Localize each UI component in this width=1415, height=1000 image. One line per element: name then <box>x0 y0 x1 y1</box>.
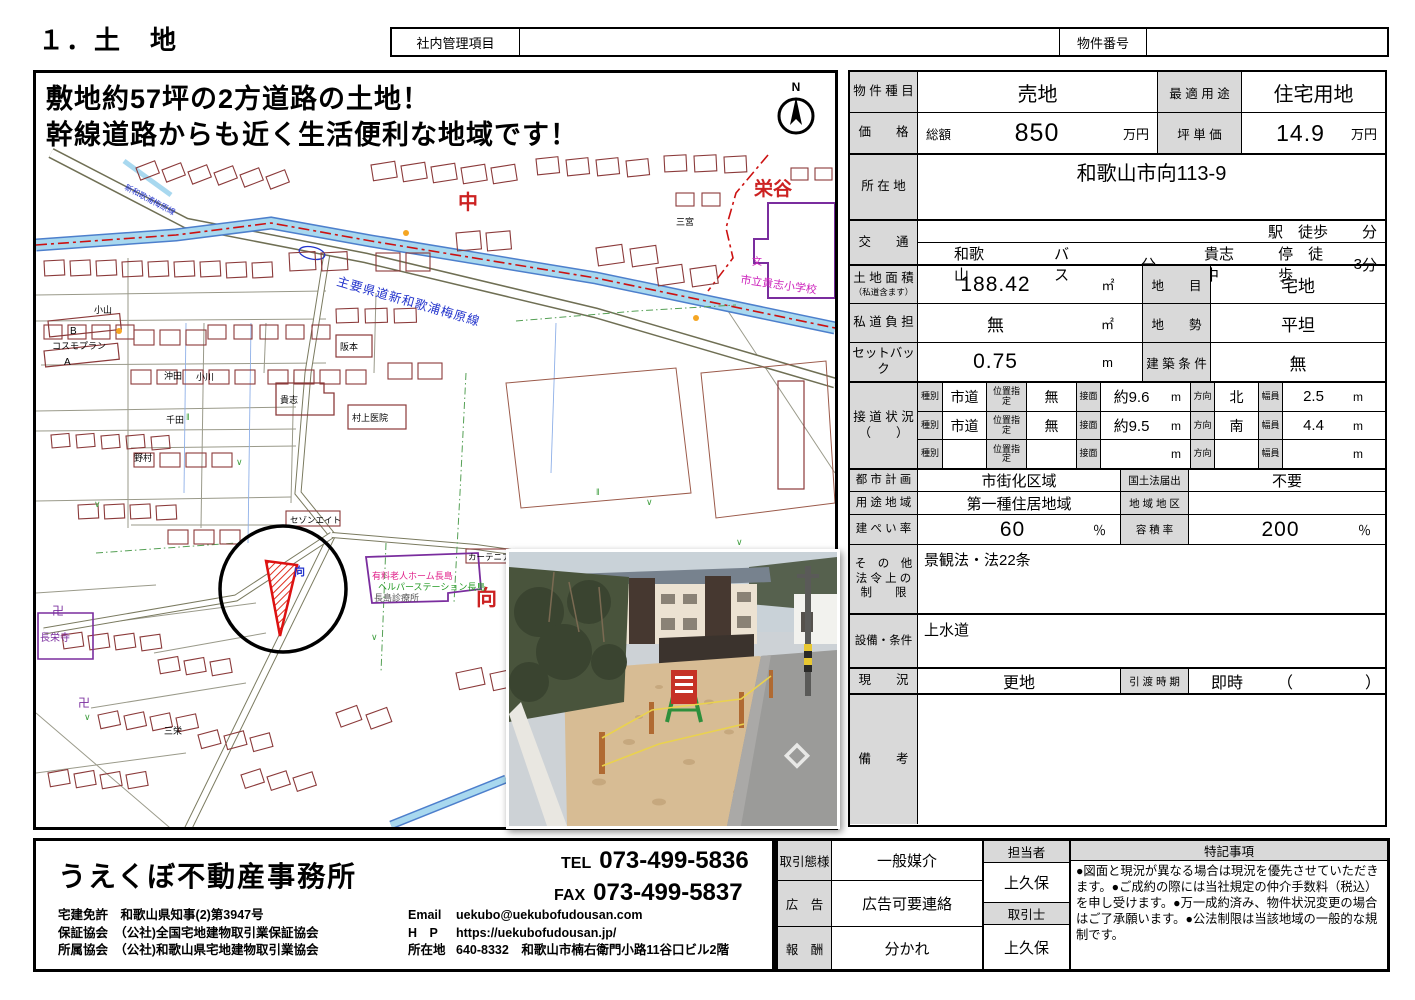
map-label-ogawa: 小川 <box>196 372 214 382</box>
address-label: 所在地 <box>408 942 456 960</box>
tsubo-price-label: 坪 単 価 <box>1157 113 1241 153</box>
map-label-sezon: セゾンエイト <box>290 515 341 525</box>
svg-text:∨: ∨ <box>736 537 743 547</box>
map-label-school-mark: 文 <box>752 255 762 268</box>
land-area-unit: ㎡ <box>1101 275 1114 294</box>
other-law-label1: そ の 他 <box>855 557 913 571</box>
far-label: 容 積 率 <box>1120 515 1188 544</box>
manji-icon: 卍 <box>52 604 64 618</box>
best-use-label: 最 適 用 途 <box>1157 72 1241 112</box>
handover-paren-close: ） <box>1365 669 1381 693</box>
road-row-2: 種別市道位置指定無接面約9.5m方向南幅員4.4m <box>918 412 1385 441</box>
road-pos-value <box>1026 440 1076 468</box>
row-cityplan-label: 都 市 計 画 <box>850 470 918 491</box>
road-dir-label: 方向 <box>1190 440 1214 468</box>
compass-n-label: N <box>792 80 801 94</box>
road-width-unit: m <box>1344 412 1372 440</box>
deal-panel: 取引態様 広 告 報 酬 一般媒介 広告可要連絡 分かれ 担当者 上久保 取引士… <box>775 838 1390 972</box>
use-zone: 第一種住居地域 <box>918 492 1120 514</box>
map-label-cosmo-b: B <box>70 326 77 337</box>
catchphrase: 敷地約57坪の2方道路の土地！ 幹線道路からも近く生活便利な地域です！ <box>46 81 578 153</box>
road-front-label: 接面 <box>1076 440 1100 468</box>
map-label-sanei: 三栄 <box>164 725 182 736</box>
ditch-lines <box>184 323 556 543</box>
far-value: 200 <box>1261 518 1299 542</box>
road-dir-value: 北 <box>1214 383 1258 411</box>
road-pos-label: 位置指定 <box>986 440 1026 468</box>
road-dir-label: 方向 <box>1190 412 1214 440</box>
map-label-school: 市立貴志小学校 <box>740 272 818 297</box>
road-type: 市道 <box>942 383 986 411</box>
internal-management-value <box>520 29 1059 55</box>
property-number-value <box>1147 29 1387 55</box>
road-width-label: 幅員 <box>1258 383 1282 411</box>
map-label-nursing1: 有料老人ホーム長島 <box>372 570 453 581</box>
city-planning: 市街化区域 <box>918 470 1120 491</box>
other-law-label3: 制 限 <box>861 586 907 600</box>
map-label-curtainia: カーテニア <box>468 552 511 562</box>
road-front-unit: m <box>1162 412 1190 440</box>
land-category: 宅地 <box>1210 266 1385 303</box>
email-label: Email <box>408 907 456 925</box>
row-road-label: 接 道 状 況 <box>853 410 913 426</box>
map-label-cosmo: コスモプラン <box>52 341 106 351</box>
row-private-road-label: 私 道 負 担 <box>850 304 918 342</box>
national-land: 不要 <box>1188 470 1385 491</box>
other-law-label2: 法 令 上 の <box>856 572 912 586</box>
map-label-senda: 千田 <box>166 415 184 425</box>
road-front-value: 約9.5 <box>1100 412 1162 440</box>
ad-value: 広告可要連絡 <box>832 881 982 927</box>
handover-label: 引 渡 時 期 <box>1120 669 1188 693</box>
road-kind-label: 種別 <box>918 412 942 440</box>
map-label-mukai-small: 向 <box>294 564 305 578</box>
map-label-kishi: 貴志 <box>280 394 298 405</box>
private-road-unit: ㎡ <box>1101 314 1114 333</box>
license-number: 和歌山県知事(2)第3947号 <box>121 908 264 922</box>
row-price-label: 価 格 <box>850 113 918 153</box>
handover-paren-open: （ <box>1277 669 1293 693</box>
road-width-unit: m <box>1344 383 1372 411</box>
map-label-nursing2: ヘルパーステーション長島 <box>378 581 485 592</box>
notes-body: ●図面と現況が異なる場合は現況を優先させていただきます。●ご成約の際には当社規定… <box>1071 861 1387 945</box>
current-status: 更地 <box>918 669 1120 693</box>
map-label-sakamoto: 阪本 <box>340 341 358 352</box>
price-unit: 万円 <box>1123 124 1149 143</box>
road-width-label: 幅員 <box>1258 412 1282 440</box>
road-width-value: 2.5 <box>1282 383 1344 411</box>
road-dir-value: 南 <box>1214 412 1258 440</box>
row-setback-label: セットバック <box>850 343 918 381</box>
page-title: １．土 地 <box>38 20 178 57</box>
road-width-label: 幅員 <box>1258 440 1282 468</box>
agency-name: うえくぼ不動産事務所 <box>58 855 357 895</box>
row-status-label: 現 況 <box>850 669 918 693</box>
best-use: 住宅用地 <box>1241 72 1385 112</box>
terrain-label: 地 勢 <box>1142 304 1210 342</box>
road-dir-label: 方向 <box>1190 383 1214 411</box>
agent-name: 上久保 <box>984 925 1069 969</box>
road-pos-label: 位置指定 <box>986 383 1026 411</box>
remarks <box>918 695 1385 824</box>
map-label-nursing3: 長島診療所 <box>374 592 419 603</box>
site-photo <box>506 549 840 829</box>
row-remarks-label: 備 考 <box>850 695 918 824</box>
svg-text:∨: ∨ <box>646 497 653 507</box>
internal-management-bar: 社内管理項目 物件番号 <box>390 27 1389 57</box>
road-width-value: 4.4 <box>1282 412 1344 440</box>
road-dir-value <box>1214 440 1258 468</box>
row-usezone-label: 用 途 地 域 <box>850 492 918 514</box>
svg-text:∨: ∨ <box>236 457 243 467</box>
svg-text:‖: ‖ <box>596 487 600 497</box>
road-front-label: 接面 <box>1076 383 1100 411</box>
manji-icon-2: 卍 <box>78 696 90 710</box>
staff-name: 上久保 <box>984 863 1069 903</box>
map-label-murakami: 村上医院 <box>352 412 388 423</box>
road-row-3: 種別位置指定接面m方向幅員m <box>918 440 1385 468</box>
setback-value: 0.75 <box>973 350 1018 374</box>
setback-unit: m <box>1102 355 1113 370</box>
fax-number: 073-499-5837 <box>593 879 742 907</box>
map-label-temple: 長栄寺 <box>40 632 70 644</box>
land-category-label: 地 目 <box>1142 266 1210 303</box>
email-value: uekubo@uekubofudousan.com <box>456 908 643 922</box>
row-area-label: 土 地 面 積 <box>853 271 913 287</box>
building-condition-label: 建 築 条 件 <box>1142 343 1210 381</box>
handover-value: 即時 <box>1211 669 1243 693</box>
station-min-unit: 分 <box>1362 221 1377 242</box>
fee-value: 分かれ <box>832 927 982 969</box>
property-table: 物 件 種 目 売地 最 適 用 途 住宅用地 価 格 総額 850 万円 坪 … <box>848 70 1387 827</box>
road-type <box>942 440 986 468</box>
catchphrase-line2: 幹線道路からも近く生活便利な地域です！ <box>46 117 578 153</box>
row-type-label: 物 件 種 目 <box>850 72 918 112</box>
fee-label: 報 酬 <box>778 927 831 969</box>
agency-panel: うえくぼ不動産事務所 TEL 073-499-5836 FAX 073-499-… <box>33 838 775 972</box>
station-walk-label: 駅 徒歩 <box>1268 221 1328 242</box>
far-unit: ％ <box>1358 520 1371 539</box>
facilities: 上水道 <box>918 615 1385 667</box>
deal-style: 一般媒介 <box>832 841 982 881</box>
guarantee-assoc: （公社)全国宅地建物取引業保証協会 <box>121 926 319 940</box>
road-kind-label: 種別 <box>918 383 942 411</box>
catchphrase-line1: 敷地約57坪の2方道路の土地！ <box>46 81 578 117</box>
tel-label: TEL <box>561 855 591 873</box>
member-assoc: （公社)和歌山県宅地建物取引業協会 <box>121 943 319 957</box>
svg-text:∨: ∨ <box>84 712 91 722</box>
row-area-sublabel: （私道含ます） <box>854 287 914 298</box>
fax-label: FAX <box>554 887 585 905</box>
road-type: 市道 <box>942 412 986 440</box>
road-kind-label: 種別 <box>918 440 942 468</box>
price-value: 850 <box>1015 119 1060 148</box>
map-label-naka: 中 <box>458 190 478 214</box>
bcr-unit: ％ <box>1093 520 1106 539</box>
map-label-sakaedani: 栄谷 <box>753 177 793 200</box>
svg-text:∨: ∨ <box>371 632 378 642</box>
road-front-unit: m <box>1162 383 1190 411</box>
tsubo-price-value: 14.9 <box>1276 120 1325 147</box>
road-front-value <box>1100 440 1162 468</box>
svg-text:‖: ‖ <box>186 412 190 422</box>
deal-style-label: 取引態様 <box>778 841 831 881</box>
map-panel: 敷地約57坪の2方道路の土地！ 幹線道路からも近く生活便利な地域です！ N <box>33 70 838 830</box>
road-pos-value: 無 <box>1026 383 1076 411</box>
tsubo-price-unit: 万円 <box>1351 124 1377 143</box>
road-row-1: 種別市道位置指定無接面約9.6m方向北幅員2.5m <box>918 383 1385 412</box>
national-land-label: 国土法届出 <box>1120 470 1188 491</box>
road-pos-label: 位置指定 <box>986 412 1026 440</box>
location-value: 和歌山市向113-9 <box>918 155 1385 188</box>
road-width-value <box>1282 440 1344 468</box>
internal-management-label: 社内管理項目 <box>392 29 520 55</box>
address-value: 640-8332 和歌山市楠右衛門小路11谷口ビル2階 <box>456 943 729 957</box>
property-number-label: 物件番号 <box>1059 29 1147 55</box>
row-road-sublabel: （ ） <box>858 426 908 442</box>
notes-label: 特記事項 <box>1071 841 1387 861</box>
bcr-value: 60 <box>1000 518 1025 542</box>
tel-number: 073-499-5836 <box>599 847 748 875</box>
road-front-unit: m <box>1162 440 1190 468</box>
hp-value: https://uekubofudousan.jp/ <box>456 926 616 940</box>
land-area-value: 188.42 <box>960 273 1030 297</box>
row-location-label: 所 在 地 <box>850 155 918 219</box>
map-label-okita: 沖田 <box>164 370 182 381</box>
other-law-value: 景観法・法22条 <box>918 545 1385 613</box>
row-transport-label: 交 通 <box>850 221 918 264</box>
road-width-unit: m <box>1344 440 1372 468</box>
map-label-nomura: 野村 <box>134 452 152 463</box>
road-front-label: 接面 <box>1076 412 1100 440</box>
row-facility-label: 設備・条件 <box>850 615 918 667</box>
road-pos-value: 無 <box>1026 412 1076 440</box>
private-road-value: 無 <box>918 304 1073 342</box>
ad-label: 広 告 <box>778 881 831 927</box>
map-label-sannomiya: 三宮 <box>676 216 694 227</box>
agent-label: 取引士 <box>984 903 1069 925</box>
property-type: 売地 <box>918 72 1157 112</box>
assoc-label: 所属協会 <box>58 943 108 957</box>
hp-label: H P <box>408 925 456 943</box>
building-condition: 無 <box>1210 343 1385 381</box>
svg-text:∨: ∨ <box>94 499 101 509</box>
compass-icon: N <box>771 79 821 148</box>
terrain: 平坦 <box>1210 304 1385 342</box>
area-district-label: 地 域 地 区 <box>1120 492 1188 514</box>
road-front-value: 約9.6 <box>1100 383 1162 411</box>
area-district <box>1188 492 1385 514</box>
staff-label: 担当者 <box>984 841 1069 863</box>
map-label-koyama: 小山 <box>94 305 112 315</box>
row-bcr-label: 建 ぺ い 率 <box>850 515 918 544</box>
price-prefix: 総額 <box>926 124 951 143</box>
license-label: 宅建免許 <box>58 908 108 922</box>
guarantee-label: 保証協会 <box>58 926 108 940</box>
map-label-cosmo-a: A <box>64 357 71 368</box>
